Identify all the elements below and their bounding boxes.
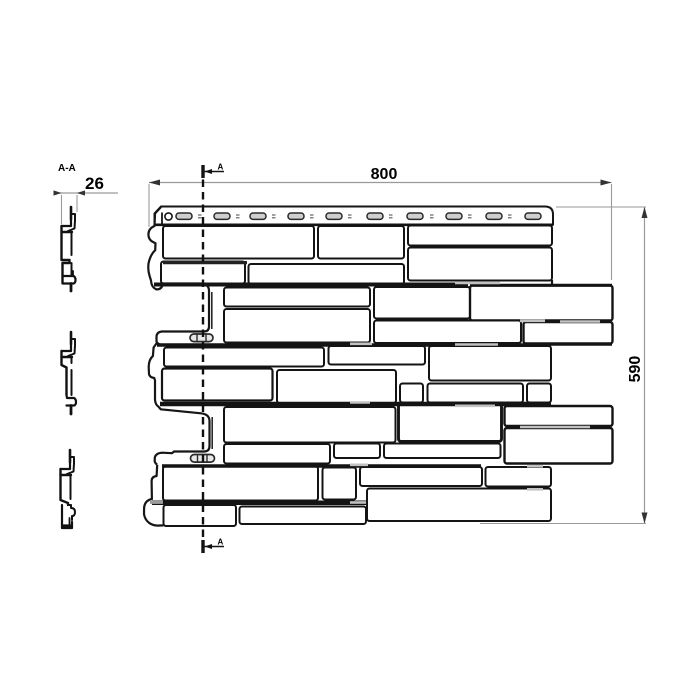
svg-text:A: A <box>218 538 224 547</box>
svg-text:590: 590 <box>627 356 644 383</box>
svg-text:800: 800 <box>371 166 398 183</box>
svg-text:A: A <box>218 163 224 172</box>
svg-text:26: 26 <box>85 174 104 193</box>
svg-text:A-A: A-A <box>58 163 76 174</box>
